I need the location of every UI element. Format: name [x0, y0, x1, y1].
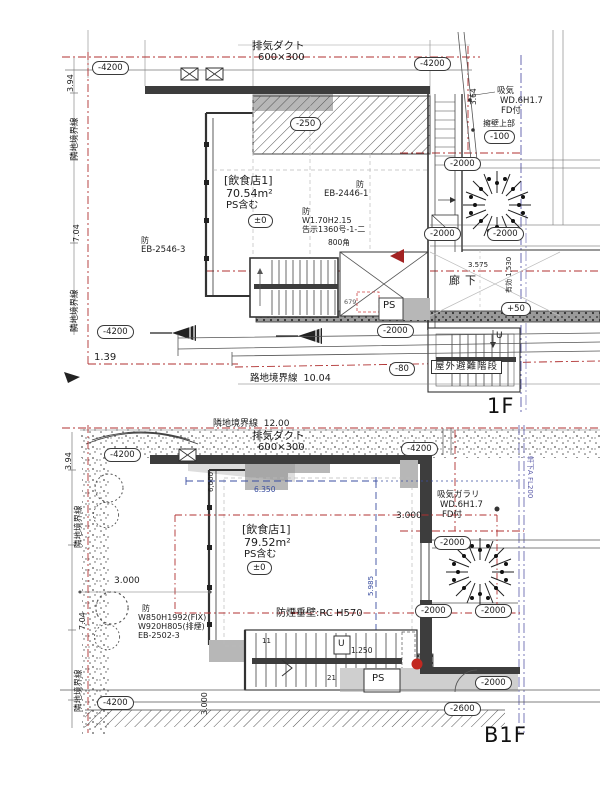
level-label-minus2000: -2000 — [444, 157, 481, 171]
exhaust-duct-label: 排気ダクト — [252, 430, 305, 443]
level-label-minus4200: -4200 — [97, 325, 134, 339]
level-label-minus4200: -4200 — [92, 61, 129, 75]
stair-up-label: U — [338, 639, 345, 650]
tenant-area: 70.54m² — [226, 187, 273, 200]
level-label-minus2000: -2000 — [424, 227, 461, 241]
tenant-area: 79.52m² — [244, 536, 291, 549]
level-label-minus2000: -2000 — [475, 604, 512, 618]
intake-louver-size: WD.6H1.7 — [440, 500, 483, 510]
intake-label: 吸気 — [497, 86, 514, 96]
level-label-pm0: ±0 — [248, 214, 273, 228]
smoke-barrier-label: 防煙垂壁:RC H570 — [276, 608, 363, 620]
intake-louver-label: 吸気ガラリ — [437, 490, 480, 500]
level-label-minus2000: -2000 — [487, 227, 524, 241]
level-label-minus80: -80 — [389, 362, 415, 376]
boundary-dim: 7.04 — [72, 224, 82, 242]
fire-door-number: EB-2546-3 — [141, 245, 185, 255]
level-label-minus2600: -2600 — [444, 702, 481, 716]
level-label-minus4200: -4200 — [401, 442, 438, 456]
site-boundary-label: 隣地境界線 — [74, 669, 84, 712]
level-label-pm0: ±0 — [247, 561, 272, 575]
site-boundary-label: 隣地境界線 — [70, 117, 80, 160]
exhaust-duct-size: 600×300 — [258, 442, 305, 454]
pipe-shaft-label: PS — [372, 673, 384, 685]
tenant-name: [飲食店1] — [242, 523, 291, 536]
level-label-minus2000: -2000 — [415, 604, 452, 618]
interior-dim: 3.000 — [114, 576, 140, 587]
boundary-dim: 3.94 — [66, 74, 76, 92]
boundary-dim: 3.94 — [64, 452, 74, 470]
level-label-minus2000: -2000 — [377, 324, 414, 338]
stair-dim: 679 — [344, 299, 356, 307]
level-label-minus4200: -4200 — [104, 448, 141, 462]
floor-title-b1f: B1F — [484, 723, 527, 749]
interior-dim: 3.000 — [200, 692, 210, 715]
intake-size: WD.6H1.7 — [500, 96, 543, 106]
corridor-dim: 3.575 — [468, 261, 488, 270]
corridor-label: 廊下 — [449, 274, 481, 287]
floor-title-1f: 1F — [487, 394, 514, 420]
interior-dim: 3.000 — [396, 511, 422, 522]
floor-plan-sheet: 排気ダクト 600×300 -4200 -4200 -4200 -250 [飲食… — [0, 0, 600, 796]
eave-note: 軒下A FL200 — [525, 456, 534, 498]
fire-window-cert: 告示1360号-1-二 — [302, 225, 365, 235]
level-label-minus250: -250 — [290, 117, 321, 131]
intake-louver-fd: FD付 — [442, 510, 462, 520]
road-boundary-label: 路地境界線 10.04 — [250, 373, 331, 385]
level-label-minus2000: -2000 — [434, 536, 471, 550]
pipe-shaft-label: PS — [383, 300, 395, 312]
tread-number: 21 — [327, 674, 336, 683]
effective-width-dim: 有効 1,530 — [505, 257, 514, 293]
interior-dim: 6.350 — [254, 485, 275, 494]
retaining-wall-label: 擁壁上部 — [483, 119, 515, 129]
level-label-minus4200: -4200 — [414, 57, 451, 71]
level-label-minus4200: -4200 — [97, 696, 134, 710]
fire-window-number: EB-2502-3 — [138, 631, 180, 641]
level-label-plus50: +50 — [501, 302, 531, 316]
tenant-note: PS含む — [244, 549, 276, 561]
site-boundary-label: 隣地境界線 — [74, 505, 84, 548]
level-label-minus100: -100 — [484, 130, 515, 144]
shaft-size-label: 800角 — [328, 238, 350, 247]
boundary-dim: 7.04 — [78, 612, 88, 630]
tenant-note: PS含む — [226, 200, 258, 212]
evac-stair-label: 屋外避難階段 — [431, 360, 502, 374]
site-boundary-top-label: 隣地境界線 12.00 — [213, 419, 290, 430]
fire-door-number: EB-2446-1 — [324, 189, 368, 199]
plan-b1f — [60, 425, 600, 734]
exhaust-duct-label: 排気ダクト — [252, 40, 305, 53]
stair-up-label: U — [496, 331, 503, 342]
tenant-name: [飲食店1] — [224, 174, 273, 187]
stair-dim: 1.250 — [351, 646, 372, 655]
interior-dim: 6,000 — [207, 472, 216, 492]
boundary-dim: 3.64 — [469, 88, 478, 105]
site-boundary-label: 隣地境界線 — [70, 289, 80, 332]
interior-dim: 5.985 — [367, 576, 376, 596]
boundary-dim: 1.39 — [94, 352, 116, 364]
intake-fd: FD付 — [501, 106, 521, 116]
level-label-minus2000: -2000 — [475, 676, 512, 690]
exhaust-duct-size: 600×300 — [258, 52, 305, 64]
tread-number: 11 — [262, 637, 271, 646]
